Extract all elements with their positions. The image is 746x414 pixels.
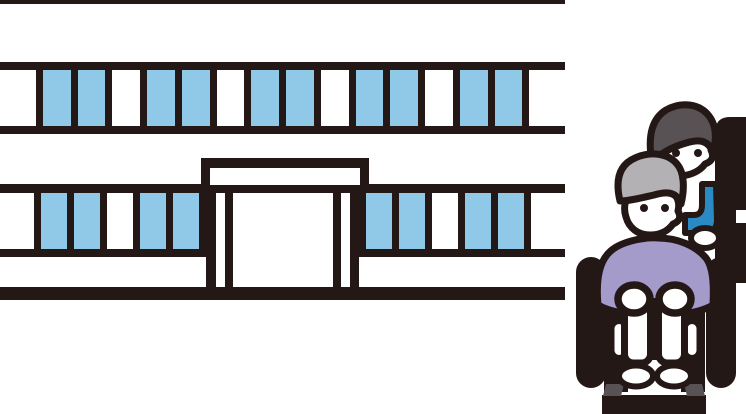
entrance-glass bbox=[216, 193, 225, 287]
floor-divider bbox=[0, 126, 565, 134]
entrance-glass bbox=[233, 193, 333, 287]
illustration-scene bbox=[0, 0, 746, 414]
entrance-glass bbox=[341, 193, 350, 287]
knee-right bbox=[659, 285, 691, 313]
window-pane-blue bbox=[495, 70, 523, 126]
footrest-bar bbox=[602, 395, 706, 414]
window-pane-blue bbox=[399, 193, 425, 249]
window-pane-blue bbox=[140, 193, 166, 249]
window-pane-blue bbox=[286, 70, 314, 126]
window-pane-white bbox=[321, 70, 349, 126]
window-pane-white bbox=[217, 70, 245, 126]
frame-slot-right bbox=[688, 324, 697, 355]
window-row-lower-left bbox=[8, 193, 199, 249]
window-pane-blue bbox=[147, 70, 175, 126]
window-pane-white bbox=[531, 193, 557, 249]
window-pane-blue bbox=[251, 70, 279, 126]
wheelchair-scene bbox=[575, 100, 746, 414]
window-pane-blue bbox=[43, 70, 71, 126]
elderly-eye bbox=[640, 204, 648, 212]
foot-right bbox=[657, 366, 691, 387]
window-pane-blue bbox=[41, 193, 67, 249]
window-row-lower-right bbox=[366, 193, 557, 249]
knee-left bbox=[618, 285, 650, 313]
entrance-doors bbox=[206, 193, 359, 287]
entrance-frame-bar bbox=[333, 193, 341, 287]
elderly-legs bbox=[618, 285, 691, 387]
entrance-canopy bbox=[201, 158, 369, 185]
window-pane-blue bbox=[460, 70, 488, 126]
window-pane-white bbox=[107, 193, 133, 249]
window-pane-blue bbox=[465, 193, 491, 249]
window-pane-blue bbox=[498, 193, 524, 249]
window-pane-white bbox=[8, 70, 36, 126]
handle-gap bbox=[736, 210, 746, 223]
window-pane-blue bbox=[356, 70, 384, 126]
caregiver-eye bbox=[694, 149, 702, 157]
building-upper-wall bbox=[8, 4, 557, 62]
floor-divider bbox=[0, 62, 565, 70]
footrest-plate-left bbox=[603, 384, 624, 396]
window-pane-blue bbox=[74, 193, 100, 249]
caregiver-eye bbox=[672, 149, 680, 157]
ground-line bbox=[0, 287, 565, 300]
elderly-head bbox=[618, 154, 683, 235]
window-pane-white bbox=[432, 193, 458, 249]
window-row-upper bbox=[8, 70, 557, 126]
entrance-frame-bar bbox=[225, 193, 233, 287]
window-pane-white bbox=[8, 193, 34, 249]
window-pane-blue bbox=[173, 193, 199, 249]
window-pane-white bbox=[425, 70, 453, 126]
window-pane-blue bbox=[78, 70, 106, 126]
floor-divider bbox=[0, 184, 565, 193]
entrance-frame-bar bbox=[350, 193, 359, 287]
window-pane-blue bbox=[390, 70, 418, 126]
elderly-eye bbox=[661, 204, 669, 212]
entrance-frame-bar bbox=[206, 193, 216, 287]
entrance-canopy-face bbox=[210, 168, 360, 185]
elderly-hair bbox=[618, 154, 683, 204]
caregiver-hand bbox=[691, 228, 719, 248]
window-pane-blue bbox=[366, 193, 392, 249]
foot-left bbox=[619, 366, 653, 387]
window-pane-white bbox=[112, 70, 140, 126]
hospital-building bbox=[0, 0, 565, 300]
window-pane-blue bbox=[182, 70, 210, 126]
window-pane-white bbox=[529, 70, 557, 126]
